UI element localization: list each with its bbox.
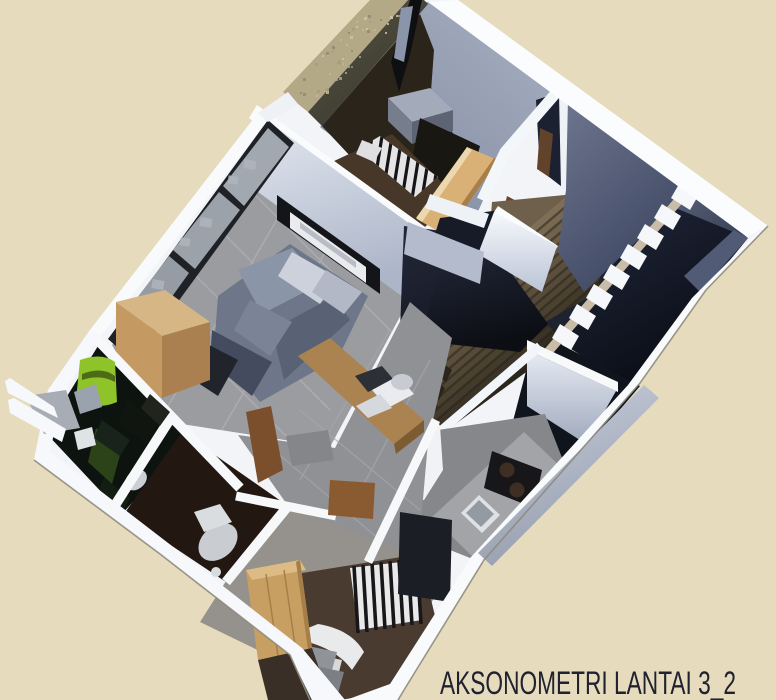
svg-text:AKSONOMETRI LANTAI 3_2: AKSONOMETRI LANTAI 3_2 <box>440 665 736 700</box>
